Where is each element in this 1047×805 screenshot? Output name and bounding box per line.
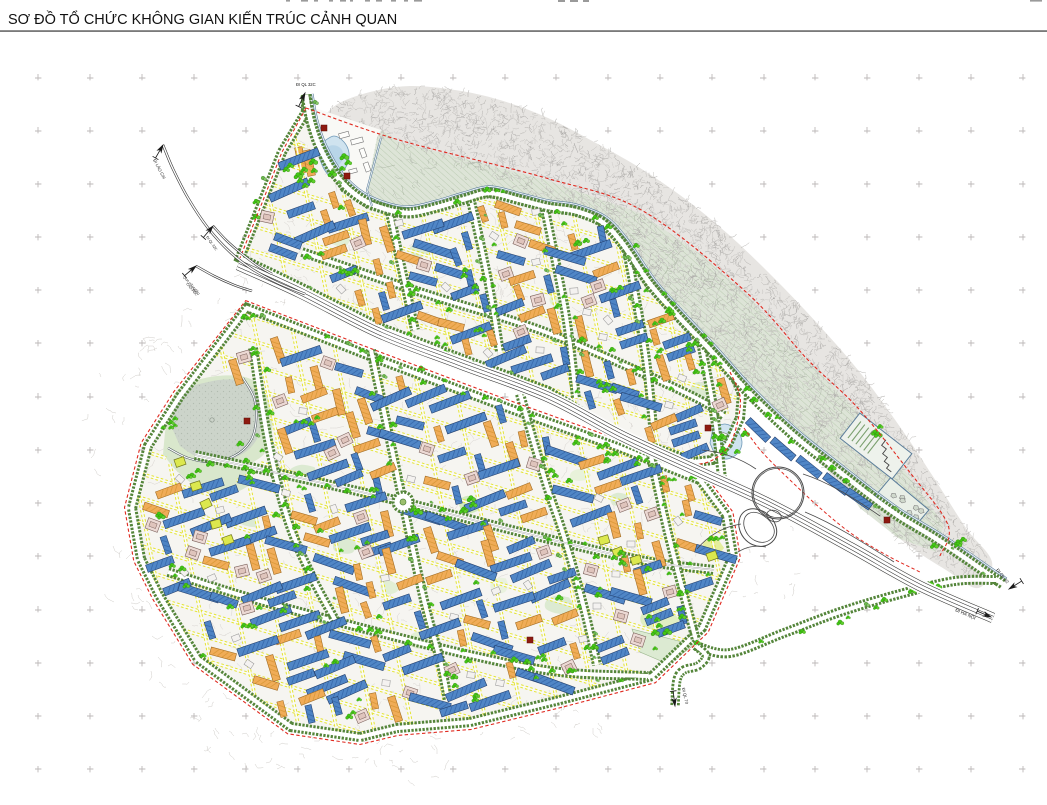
svg-text:ĐI QL 32C: ĐI QL 32C [296, 82, 316, 87]
svg-text:SƠ ĐỒ TỔ CHỨC KHÔNG GIAN KIẾN: SƠ ĐỒ TỔ CHỨC KHÔNG GIAN KIẾN TRÚC CẢNH … [8, 10, 397, 28]
